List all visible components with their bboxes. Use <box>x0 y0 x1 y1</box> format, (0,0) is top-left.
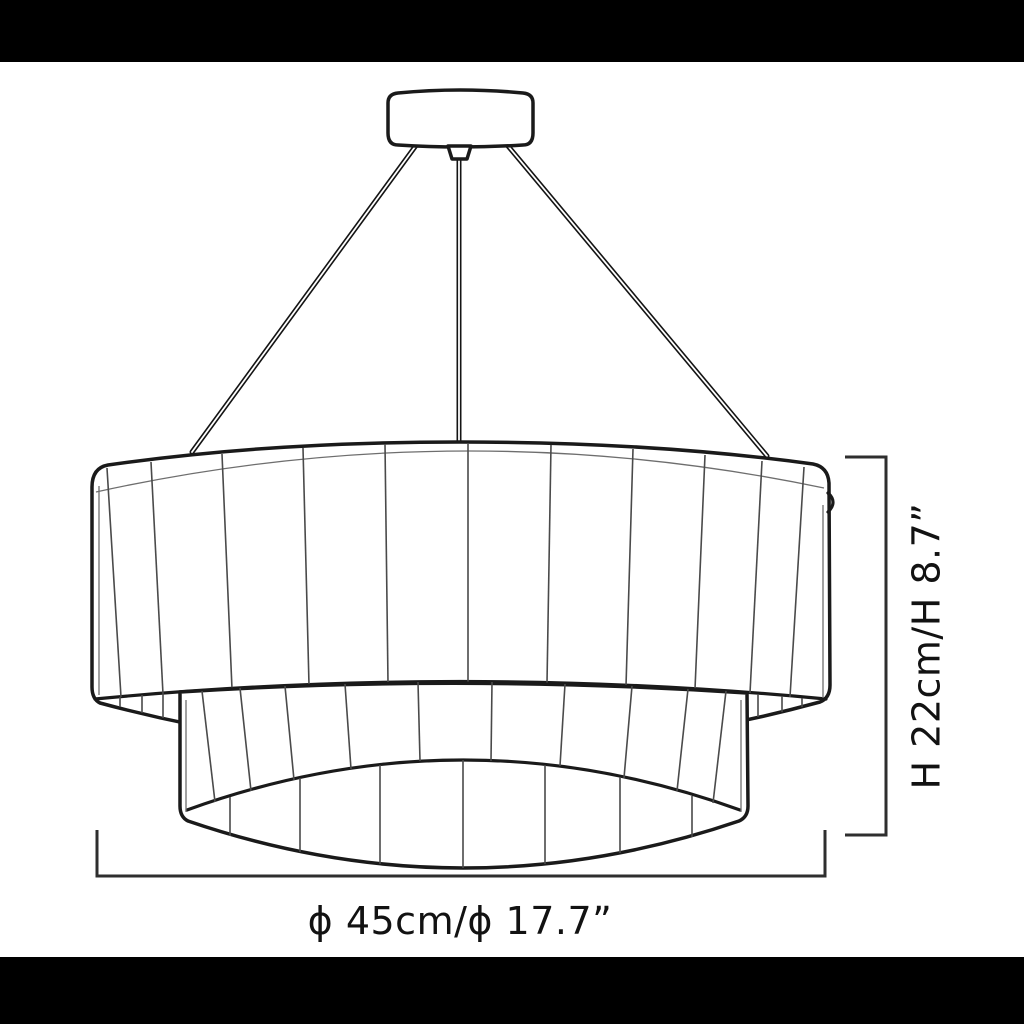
lower-drum-tier <box>180 682 748 868</box>
height-dimension: H 22cm/H 8.7” <box>845 457 949 835</box>
lower-drum-body <box>180 683 748 868</box>
panel-seam <box>491 682 492 761</box>
chandelier-dimension-diagram: H 22cm/H 8.7” ϕ 45cm/ϕ 17.7” <box>0 0 1024 1024</box>
letterbox-bottom <box>0 957 1024 1024</box>
height-dimension-label: H 22cm/H 8.7” <box>905 503 949 790</box>
diameter-dimension-label: ϕ 45cm/ϕ 17.7” <box>308 899 613 943</box>
letterbox-top <box>0 0 1024 62</box>
suspension-cables <box>192 140 767 456</box>
canopy-stem <box>448 146 471 159</box>
canopy-body <box>388 90 533 147</box>
cable-right-highlight <box>503 140 767 456</box>
diagram-canvas: H 22cm/H 8.7” ϕ 45cm/ϕ 17.7” <box>0 0 1024 1024</box>
height-dimension-bracket <box>845 457 886 835</box>
cable-left-highlight <box>192 140 420 452</box>
